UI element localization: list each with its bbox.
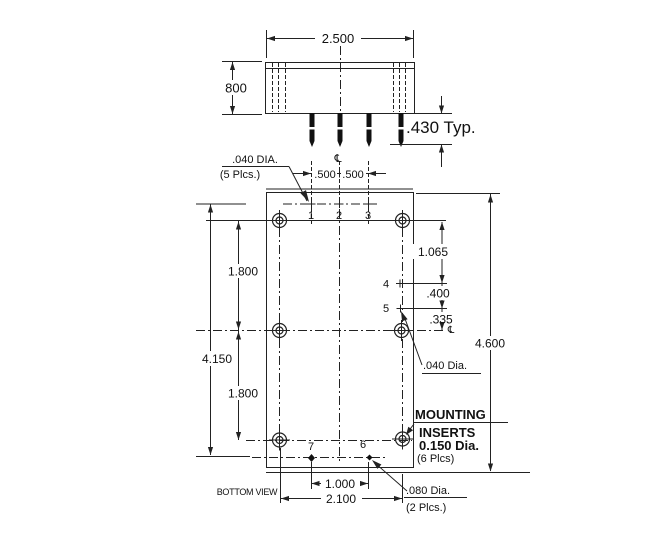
bottom-view bbox=[196, 161, 530, 503]
engineering-drawing: 2.500 800 .430 Typ. .040 DIA. (5 Plcs.) … bbox=[0, 0, 645, 550]
centerline-symbol-top: ℄ bbox=[333, 153, 341, 165]
mounting-insert-hole bbox=[269, 210, 290, 231]
pin6-number: 6 bbox=[360, 439, 366, 451]
mounting-inserts-line1: MOUNTING bbox=[415, 407, 486, 422]
leader-arrow-insert bbox=[406, 427, 413, 435]
dim-body-height-text: 800 bbox=[225, 81, 247, 96]
leader-arrow-pin5 bbox=[401, 311, 408, 321]
dim-overall-height-text: 4.600 bbox=[475, 337, 505, 351]
pin7-number: 7 bbox=[308, 441, 314, 453]
bottom-pins-dia-label: .080 Dia. bbox=[406, 485, 450, 497]
dim-pin-length-text: .430 Typ. bbox=[406, 118, 476, 137]
drawing-surface: 2.500 800 .430 Typ. .040 DIA. (5 Plcs.) … bbox=[0, 0, 645, 550]
dim-pin4-to-pin5-text: .400 bbox=[426, 287, 450, 301]
dim-pin-spacing-right-text: .500 bbox=[342, 169, 363, 181]
pin6-marker bbox=[367, 455, 373, 461]
centerline-symbol-middle: ℄ bbox=[447, 325, 455, 336]
mounting-insert-hole bbox=[269, 320, 290, 341]
view-title: BOTTOM VIEW bbox=[217, 487, 278, 497]
dim-pin-row-span-text: 4.150 bbox=[202, 352, 232, 366]
mounting-insert-hole bbox=[392, 210, 413, 231]
top-view bbox=[222, 30, 452, 167]
dim-hole-to-pin4-text: 1.065 bbox=[418, 245, 448, 259]
pin-dia-label: .040 DIA. bbox=[232, 154, 278, 166]
pin1-number: 1 bbox=[308, 210, 314, 222]
dim-hole-span-upper-text: 1.800 bbox=[228, 265, 258, 279]
pin4-number: 4 bbox=[383, 279, 389, 291]
column-centerlines bbox=[280, 209, 403, 461]
dim-pin5-to-center-text: .335 bbox=[429, 313, 453, 327]
dim-top-width-text: 2.500 bbox=[322, 31, 355, 46]
dim-pin6-to-pin7-text: 1.000 bbox=[325, 477, 355, 491]
pin2-number: 2 bbox=[336, 210, 342, 222]
hidden-insert-lines bbox=[273, 63, 406, 112]
pin5-dia-label: .040 Dia. bbox=[423, 360, 467, 372]
pin3-number: 3 bbox=[365, 210, 371, 222]
pin7-marker bbox=[308, 454, 315, 462]
pin5-number: 5 bbox=[383, 303, 389, 315]
mounting-inserts-line3: 0.150 Dia. bbox=[419, 438, 479, 453]
dim-pin-spacing-left-text: .500 bbox=[314, 169, 335, 181]
pins-side-view bbox=[309, 113, 404, 147]
dim-hole-span-width-text: 2.100 bbox=[326, 492, 356, 506]
dim-hole-span-lower-text: 1.800 bbox=[228, 387, 258, 401]
bottom-pins-dia-places: (2 Plcs.) bbox=[406, 502, 446, 514]
pin-dia-places: (5 Plcs.) bbox=[220, 169, 260, 181]
mounting-insert-hole bbox=[269, 430, 290, 451]
mounting-inserts-line4: (6 Plcs) bbox=[417, 453, 454, 465]
